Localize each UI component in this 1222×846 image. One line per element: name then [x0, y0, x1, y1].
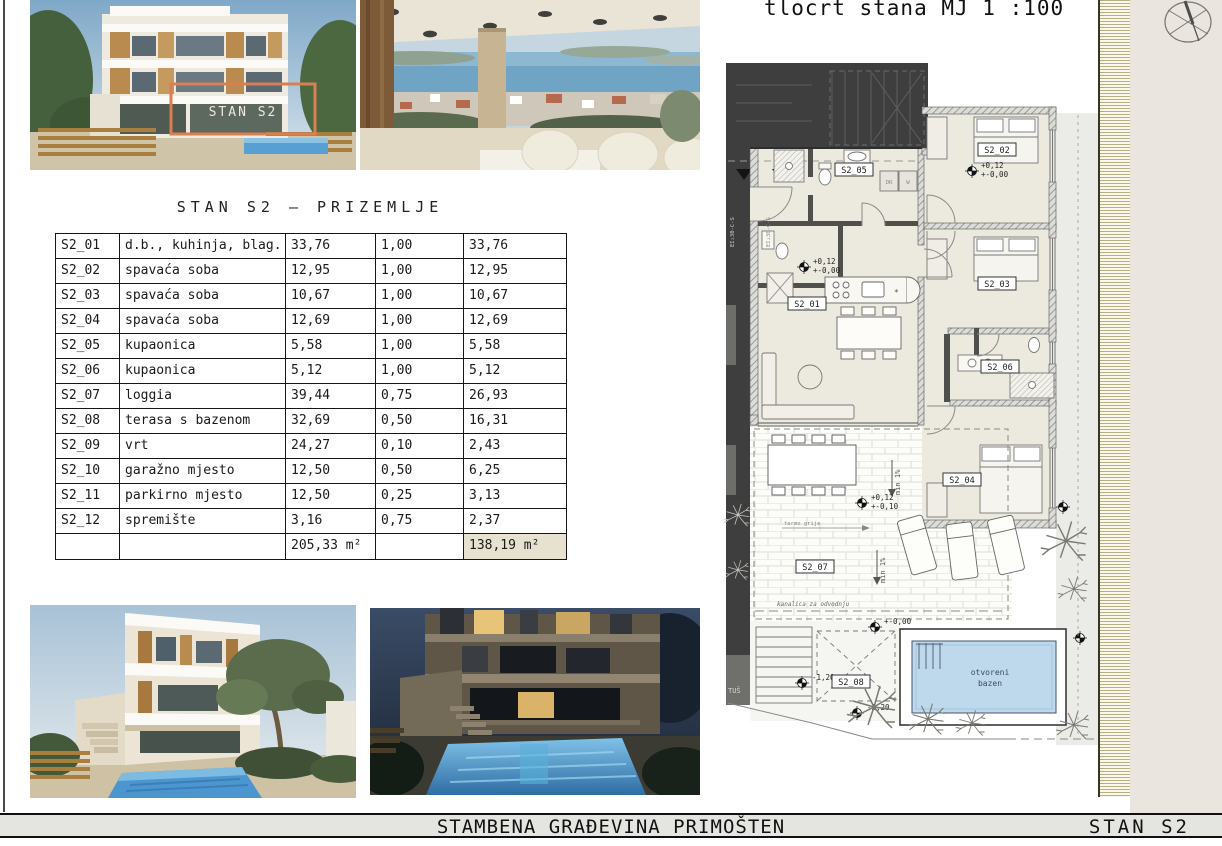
hatch-strip [1098, 0, 1132, 797]
table-row: S2_10garažno mjesto12,500,506,25 [56, 459, 566, 484]
render-building-side-day [30, 605, 356, 798]
table-cell: 3,16 [286, 509, 376, 534]
project-title: STAMBENA GRAĐEVINA PRIMOŠTEN [0, 816, 1222, 838]
table-cell: kupaonica [120, 334, 286, 359]
table-row: S2_12spremište3,160,752,37 [56, 509, 566, 534]
svg-text:S2_07: S2_07 [802, 563, 828, 573]
table-row: S2_08terasa s bazenom32,690,5016,31 [56, 409, 566, 434]
table-row: S2_05kupaonica5,581,005,58 [56, 334, 566, 359]
table-cell: 2,43 [464, 434, 566, 459]
table-cell: 1,00 [376, 259, 464, 284]
table-cell: 1,00 [376, 234, 464, 259]
sun-loungers [897, 515, 1025, 581]
table-cell: 6,25 [464, 459, 566, 484]
svg-text:min 1%: min 1% [879, 557, 887, 583]
svg-text:S2_02: S2_02 [984, 146, 1010, 156]
svg-text:S2_04: S2_04 [949, 476, 975, 486]
render-building-night [370, 608, 700, 795]
table-cell: 0,50 [376, 409, 464, 434]
svg-text:S2_06: S2_06 [987, 363, 1013, 373]
table-cell: 1,00 [376, 309, 464, 334]
table-cell: spavaća soba [120, 284, 286, 309]
table-cell: 0,75 [376, 509, 464, 534]
svg-text:+0,12: +0,12 [871, 493, 894, 502]
table-cell: 0,75 [376, 384, 464, 409]
table-row: S2_11parkirno mjesto12,500,253,13 [56, 484, 566, 509]
plan-title: tlocrt stana MJ 1 :100 [764, 0, 1064, 20]
table-cell: 1,00 [376, 359, 464, 384]
fire-rating-label-2: EI₂30-C-S [766, 217, 772, 247]
table-cell: S2_01 [56, 234, 120, 259]
table-cell: garažno mjesto [120, 459, 286, 484]
table-row: S2_09vrt24,270,102,43 [56, 434, 566, 459]
render-terrace-sea-view [360, 0, 700, 170]
table-cell: S2_02 [56, 259, 120, 284]
pool-label-2: bazen [978, 679, 1002, 688]
table-cell: S2_03 [56, 284, 120, 309]
table-cell [120, 534, 286, 559]
svg-text:S2_01: S2_01 [794, 300, 820, 310]
pool: otvoreni bazen [900, 629, 1066, 725]
table-cell: 5,58 [286, 334, 376, 359]
total-area-cell: 205,33 m² [286, 534, 376, 559]
table-cell: spremište [120, 509, 286, 534]
svg-text:+-0,00: +-0,00 [813, 266, 841, 275]
table-cell: 0,10 [376, 434, 464, 459]
table-cell: S2_09 [56, 434, 120, 459]
table-cell: 16,31 [464, 409, 566, 434]
table-cell: 0,25 [376, 484, 464, 509]
table-cell [376, 534, 464, 559]
svg-text:min 1%: min 1% [894, 469, 902, 495]
total-value-cell: 138,19 m² [464, 534, 566, 559]
table-row: S2_02spavaća soba12,951,0012,95 [56, 259, 566, 284]
sheet-title: STAN S2 [1089, 816, 1190, 838]
table-cell: S2_11 [56, 484, 120, 509]
table-cell: 1,00 [376, 334, 464, 359]
table-cell: 12,69 [464, 309, 566, 334]
table-cell: 12,50 [286, 484, 376, 509]
closet-dr-label: DR [886, 180, 893, 186]
table-cell: S2_08 [56, 409, 120, 434]
bed-s2-03 [927, 237, 1038, 281]
svg-text:+-0,00: +-0,00 [981, 170, 1009, 179]
table-cell: 12,50 [286, 459, 376, 484]
table-cell: spavaća soba [120, 309, 286, 334]
shower-label: TUŠ [728, 686, 741, 695]
svg-text:+-0,10: +-0,10 [871, 502, 899, 511]
table-cell: 33,76 [286, 234, 376, 259]
north-arrow-icon [1162, 0, 1216, 48]
table-row: S2_01d.b., kuhinja, blag.33,761,0033,76 [56, 234, 566, 259]
pool [426, 738, 646, 795]
svg-text:+-0,00: +-0,00 [884, 617, 912, 626]
sheet-edge-line [3, 0, 5, 812]
table-cell: 2,37 [464, 509, 566, 534]
render-building-front-day: STAN S2 [30, 0, 356, 170]
right-margin-panel [1130, 0, 1222, 813]
area-table-body: S2_01d.b., kuhinja, blag.33,761,0033,76S… [56, 234, 566, 534]
table-cell: 1,00 [376, 284, 464, 309]
table-cell: spavaća soba [120, 259, 286, 284]
table-cell: 10,67 [286, 284, 376, 309]
table-cell: S2_12 [56, 509, 120, 534]
table-cell: kupaonica [120, 359, 286, 384]
table-cell: 5,12 [286, 359, 376, 384]
table-cell: S2_05 [56, 334, 120, 359]
stone-column [478, 28, 506, 132]
table-cell: S2_04 [56, 309, 120, 334]
table-cell: 24,27 [286, 434, 376, 459]
table-cell: 10,67 [464, 284, 566, 309]
svg-text:+0,12: +0,12 [813, 257, 836, 266]
pool-label-1: otvoreni [971, 668, 1010, 677]
table-cell: loggia [120, 384, 286, 409]
table-cell: 12,69 [286, 309, 376, 334]
table-row: S2_04spavaća soba12,691,0012,69 [56, 309, 566, 334]
fire-rating-label-1: EI₂30-C-S [730, 217, 736, 247]
table-cell [56, 534, 120, 559]
table-total-row: 205,33 m² 138,19 m² [56, 534, 566, 559]
table-cell: S2_10 [56, 459, 120, 484]
table-cell: vrt [120, 434, 286, 459]
table-cell: S2_06 [56, 359, 120, 384]
stan-s2-overlay-label: STAN S2 [209, 105, 278, 120]
table-cell: 26,93 [464, 384, 566, 409]
title-bar: STAMBENA GRAĐEVINA PRIMOŠTEN STAN S2 [0, 813, 1222, 838]
area-table: S2_01d.b., kuhinja, blag.33,761,0033,76S… [55, 233, 567, 560]
svg-text:S2_08: S2_08 [838, 678, 864, 688]
dining-table [837, 307, 901, 359]
table-cell: d.b., kuhinja, blag. [120, 234, 286, 259]
svg-text:*: * [894, 288, 899, 297]
table-cell: S2_07 [56, 384, 120, 409]
svg-text:termo grije: termo grije [784, 521, 820, 527]
table-title: STAN S2 – PRIZEMLJE [55, 198, 565, 216]
table-cell: 0,50 [376, 459, 464, 484]
floor-plan: S2 [722, 55, 1098, 767]
table-cell: 12,95 [286, 259, 376, 284]
table-row: S2_06kupaonica5,121,005,12 [56, 359, 566, 384]
table-cell: 3,13 [464, 484, 566, 509]
table-cell: 12,95 [464, 259, 566, 284]
table-cell: 5,58 [464, 334, 566, 359]
table-cell: 33,76 [464, 234, 566, 259]
table-cell: parkirno mjesto [120, 484, 286, 509]
table-row: S2_07loggia39,440,7526,93 [56, 384, 566, 409]
svg-text:S2_03: S2_03 [984, 280, 1010, 290]
table-row: S2_03spavaća soba10,671,0010,67 [56, 284, 566, 309]
svg-text:S2_05: S2_05 [841, 166, 867, 176]
svg-text:+0,12: +0,12 [981, 161, 1004, 170]
drain-note: kanalica za odvodnju [777, 601, 850, 608]
kitchen: * [825, 277, 920, 303]
table-cell: terasa s bazenom [120, 409, 286, 434]
table-cell: 32,69 [286, 409, 376, 434]
table-cell: 39,44 [286, 384, 376, 409]
table-cell: 5,12 [464, 359, 566, 384]
